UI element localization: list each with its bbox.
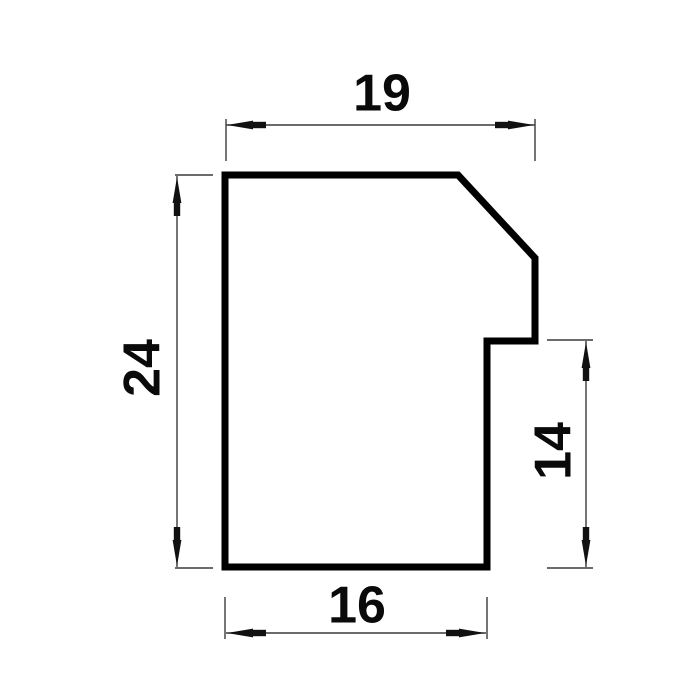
arrowhead: [173, 540, 182, 566]
arrowhead-tail: [446, 630, 459, 636]
technical-drawing-canvas: 19 24 14: [0, 0, 700, 700]
arrowhead: [227, 121, 253, 130]
arrowhead: [508, 121, 534, 130]
arrowhead: [582, 540, 591, 566]
arrowhead-tail: [174, 203, 180, 216]
arrowhead: [459, 629, 485, 638]
dimension-label-right: 14: [525, 422, 583, 480]
arrowhead-tail: [583, 527, 589, 540]
arrowhead: [227, 629, 253, 638]
dimension-left-height: [175, 175, 213, 568]
arrowhead-tail: [253, 122, 266, 128]
dimension-top-width: [226, 119, 535, 161]
arrowhead: [582, 342, 591, 368]
dimension-label-top: 19: [353, 65, 411, 123]
dimension-label-bottom: 16: [328, 577, 386, 635]
dimension-label-left: 24: [114, 339, 172, 397]
arrowhead-tail: [583, 368, 589, 381]
moulding-profile-drawing: 19 24 14: [0, 0, 700, 700]
arrowhead-tail: [253, 630, 266, 636]
arrowhead-tail: [174, 527, 180, 540]
arrowhead: [173, 177, 182, 203]
arrowhead-tail: [495, 122, 508, 128]
profile-outline: [225, 175, 535, 567]
